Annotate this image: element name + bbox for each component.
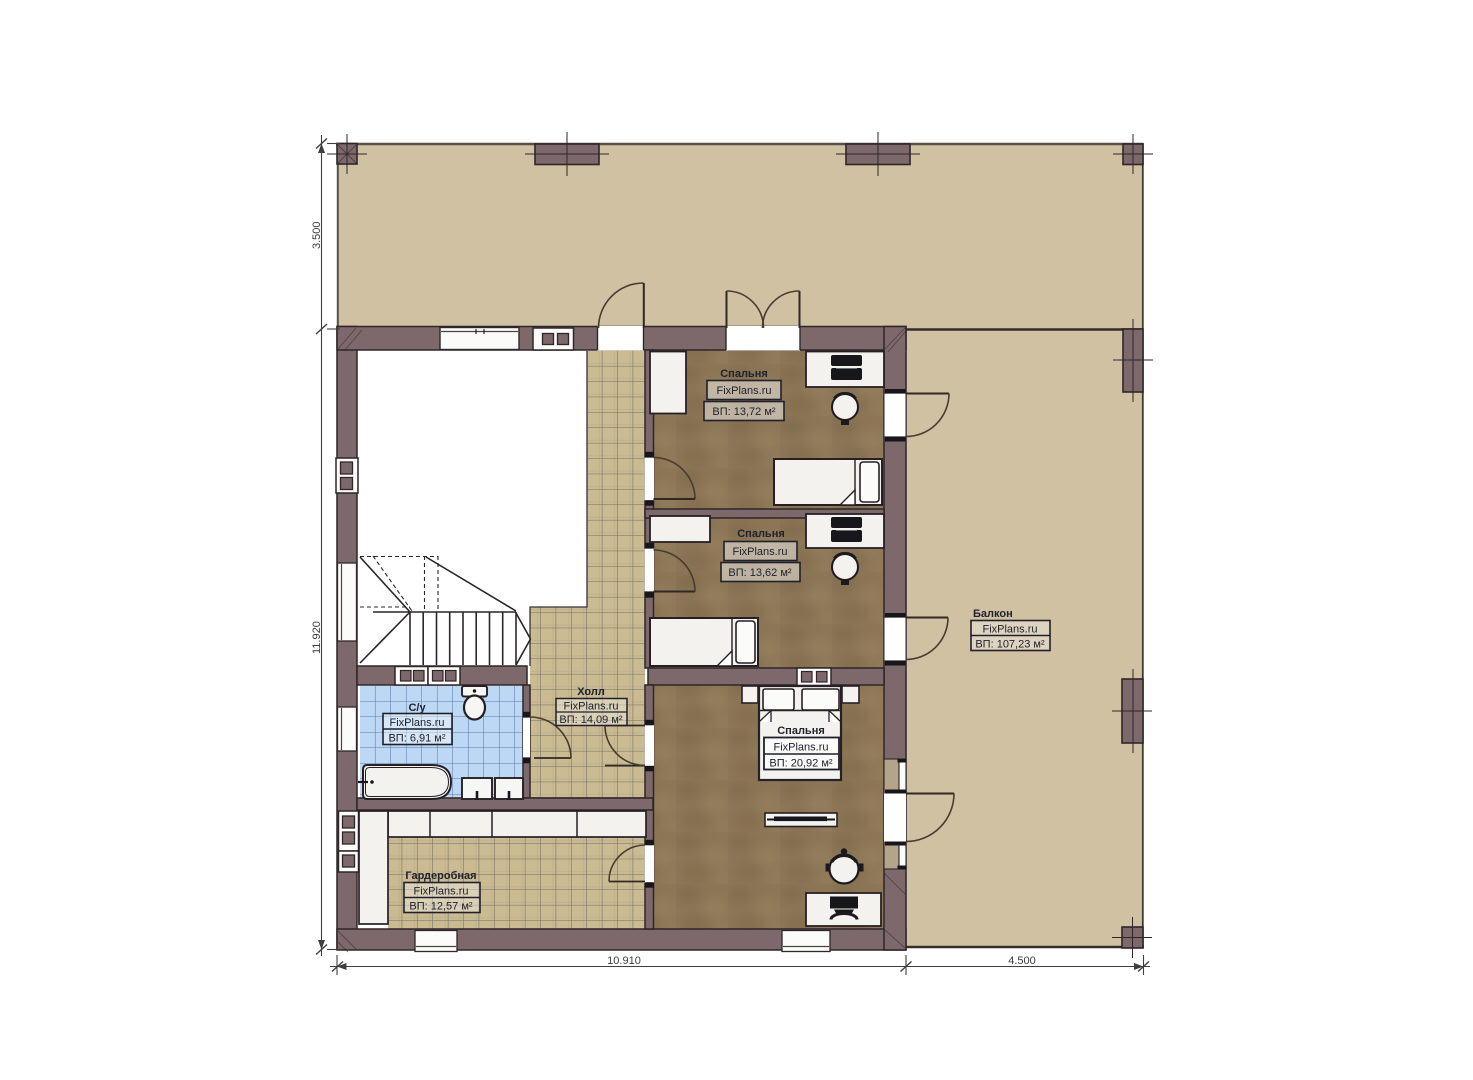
svg-text:10.910: 10.910	[607, 955, 641, 967]
svg-text:Балкон: Балкон	[973, 608, 1013, 620]
svg-text:ВП: 12,57 м²: ВП: 12,57 м²	[409, 901, 473, 913]
svg-text:FixPlans.ru: FixPlans.ru	[563, 701, 618, 713]
svg-text:FixPlans.ru: FixPlans.ru	[413, 886, 468, 898]
svg-text:ВП: 13,62 м²: ВП: 13,62 м²	[728, 567, 792, 579]
svg-text:3.500: 3.500	[311, 221, 323, 249]
svg-text:Гардеробная: Гардеробная	[405, 870, 476, 882]
svg-text:ВП: 6,91 м²: ВП: 6,91 м²	[388, 733, 445, 745]
svg-text:FixPlans.ru: FixPlans.ru	[982, 624, 1037, 636]
svg-text:ВП: 20,92 м²: ВП: 20,92 м²	[769, 758, 833, 770]
svg-text:ВП: 13,72 м²: ВП: 13,72 м²	[712, 406, 776, 418]
svg-text:С/у: С/у	[408, 702, 426, 714]
svg-text:FixPlans.ru: FixPlans.ru	[732, 546, 787, 558]
svg-text:ВП: 14,09 м²: ВП: 14,09 м²	[559, 714, 623, 726]
svg-text:Спальня: Спальня	[737, 528, 785, 540]
svg-text:FixPlans.ru: FixPlans.ru	[773, 742, 828, 754]
svg-text:11.920: 11.920	[311, 621, 323, 654]
svg-text:4.500: 4.500	[1008, 955, 1036, 967]
svg-text:Холл: Холл	[577, 686, 605, 698]
svg-text:FixPlans.ru: FixPlans.ru	[716, 385, 771, 397]
svg-text:FixPlans.ru: FixPlans.ru	[389, 717, 444, 729]
svg-text:ВП: 107,23 м²: ВП: 107,23 м²	[975, 639, 1045, 651]
svg-text:Спальня: Спальня	[777, 725, 825, 737]
svg-text:Спальня: Спальня	[720, 368, 768, 380]
